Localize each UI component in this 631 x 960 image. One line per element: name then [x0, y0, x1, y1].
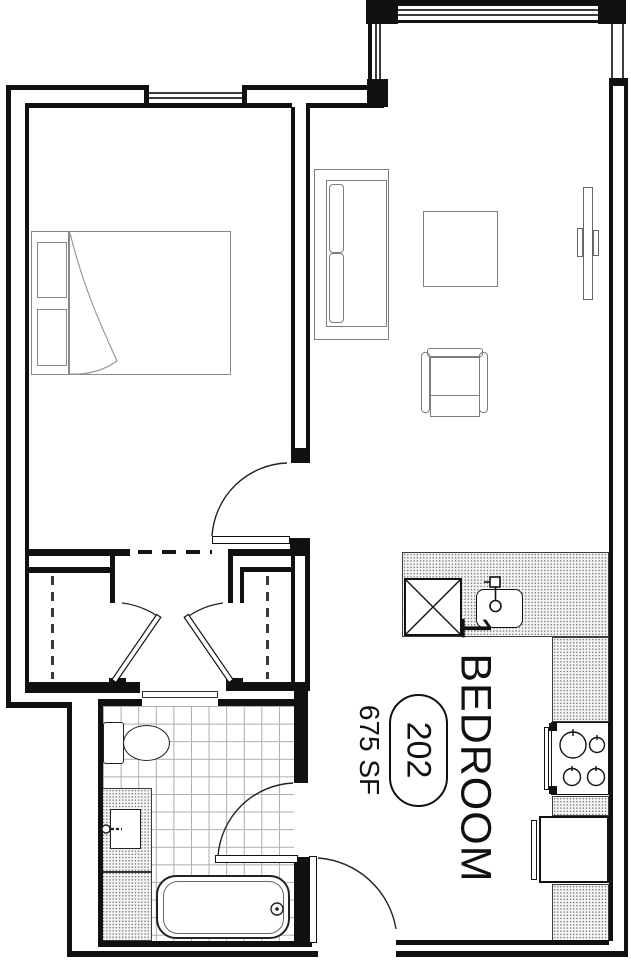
- closet-right-door-leaf: [184, 614, 233, 682]
- closet-left-door-swing-arc: [122, 603, 160, 618]
- bedroom-door-swing-arc: [212, 463, 287, 536]
- entry-door-swing-arc: [318, 858, 396, 929]
- plan-line-overlay: [0, 0, 631, 960]
- bathtub-drain: [271, 903, 283, 915]
- unit-number-label: 202: [399, 722, 438, 779]
- unit-type-label: 1 BEDROOM: [451, 615, 500, 882]
- unit-area-label: 675 SF: [353, 705, 385, 795]
- closet-right-door-swing-arc: [186, 603, 223, 618]
- range-burners: [560, 729, 605, 786]
- bathroom-door-swing-arc: [218, 783, 293, 856]
- bed-blanket-fold: [70, 233, 117, 374]
- kitchen-faucet: [484, 577, 501, 612]
- closet-left-door-leaf: [112, 614, 161, 682]
- vanity-faucet: [102, 825, 122, 833]
- floor-plan: 1 BEDROOM 202 675 SF: [0, 0, 631, 960]
